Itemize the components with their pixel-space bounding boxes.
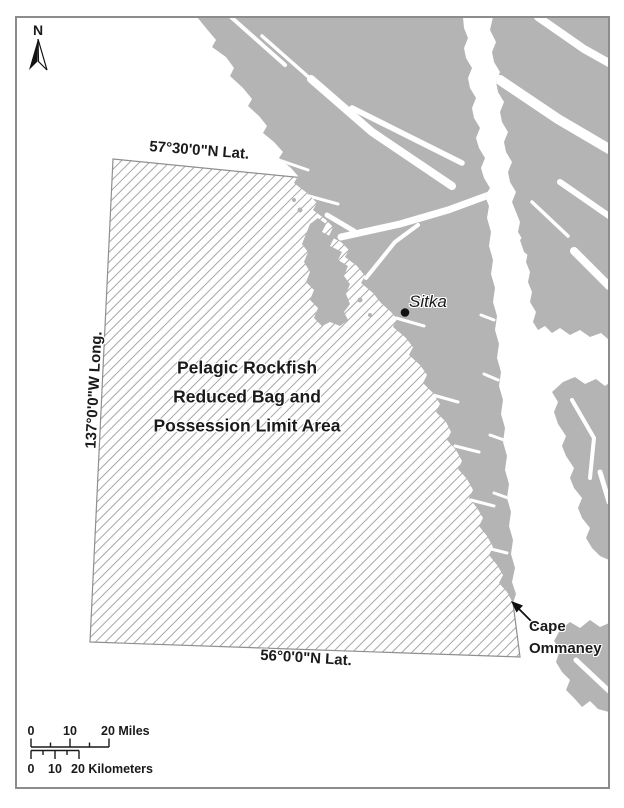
cape-ommaney-label-line1: Cape (529, 616, 602, 638)
cape-ommaney-label: Cape Ommaney (529, 616, 602, 659)
limit-area-title-line3: Possession Limit Area (153, 412, 340, 441)
scale-km-10: 10 (48, 762, 62, 776)
scale-km-0: 0 (28, 762, 35, 776)
scale-km-20: 20 Kilometers (71, 762, 153, 776)
north-arrow-label: N (33, 22, 43, 38)
limit-area-title: Pelagic Rockfish Reduced Bag and Possess… (153, 354, 340, 441)
sitka-point-marker (401, 308, 410, 317)
limit-area-title-line1: Pelagic Rockfish (153, 354, 340, 383)
sitka-label: Sitka (409, 292, 447, 312)
map-page: N 57°30'0"N Lat. 137°0'0"W Long. 56°0'0"… (0, 0, 624, 808)
scale-miles-0: 0 (28, 724, 35, 738)
limit-area-title-line2: Reduced Bag and (153, 383, 340, 412)
scale-miles-10: 10 (63, 724, 77, 738)
scale-miles-20: 20 Miles (101, 724, 150, 738)
cape-ommaney-label-line2: Ommaney (529, 638, 602, 660)
